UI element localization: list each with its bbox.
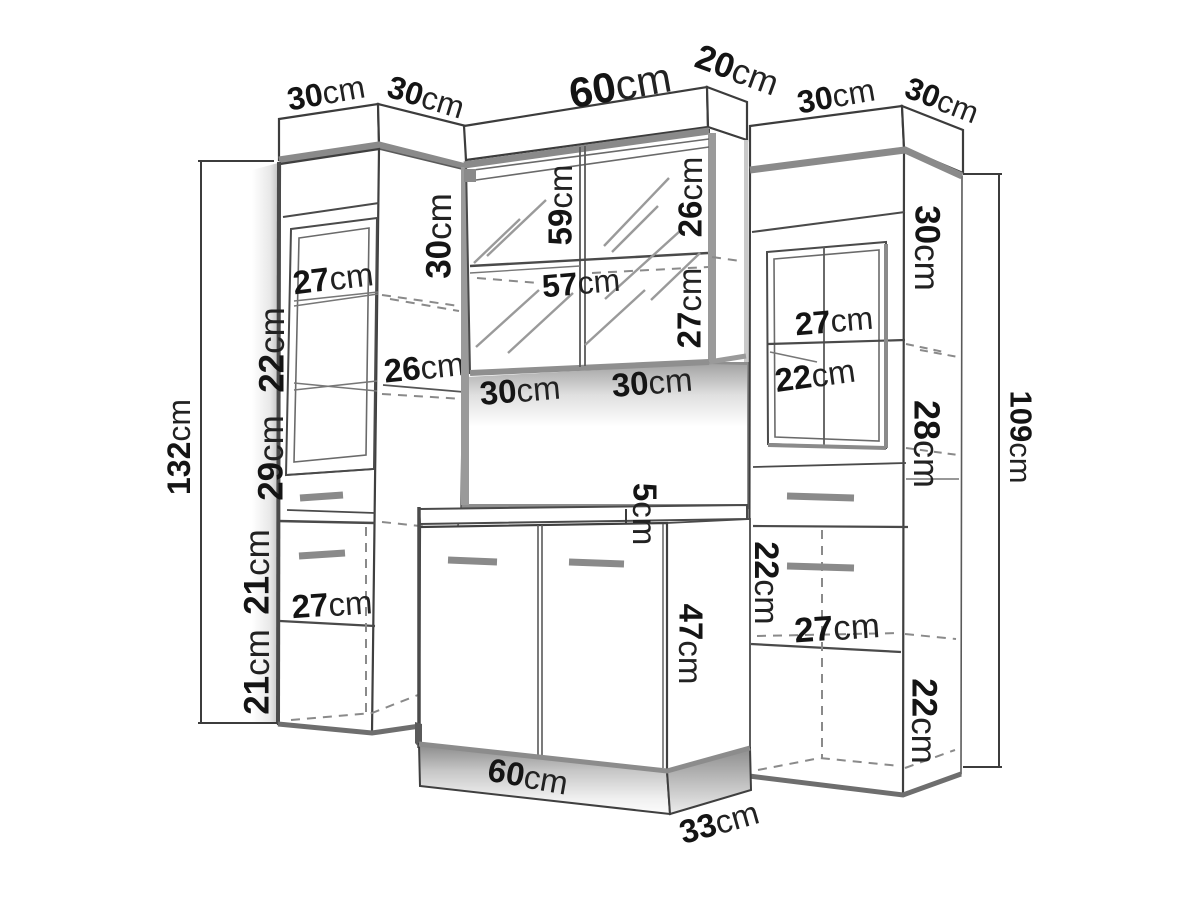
svg-text:27cm: 27cm bbox=[793, 606, 881, 651]
svg-text:47cm: 47cm bbox=[673, 604, 710, 685]
svg-text:27cm: 27cm bbox=[671, 268, 708, 349]
svg-text:29cm: 29cm bbox=[252, 415, 291, 501]
svg-text:30cm: 30cm bbox=[908, 205, 947, 291]
svg-text:27cm: 27cm bbox=[290, 583, 373, 626]
svg-text:22cm: 22cm bbox=[905, 678, 944, 764]
svg-text:27cm: 27cm bbox=[793, 300, 874, 343]
svg-text:109cm: 109cm bbox=[1004, 390, 1039, 483]
svg-text:26cm: 26cm bbox=[672, 157, 709, 238]
svg-text:28cm: 28cm bbox=[907, 400, 948, 488]
svg-text:22cm: 22cm bbox=[253, 307, 292, 393]
svg-text:21cm: 21cm bbox=[238, 629, 277, 715]
svg-text:5cm: 5cm bbox=[627, 483, 664, 545]
svg-text:21cm: 21cm bbox=[238, 529, 277, 615]
svg-text:57cm: 57cm bbox=[540, 262, 621, 305]
svg-text:30cm: 30cm bbox=[420, 193, 459, 279]
svg-text:22cm: 22cm bbox=[747, 541, 785, 624]
svg-text:59cm: 59cm bbox=[542, 165, 579, 246]
svg-text:132cm: 132cm bbox=[161, 399, 197, 495]
